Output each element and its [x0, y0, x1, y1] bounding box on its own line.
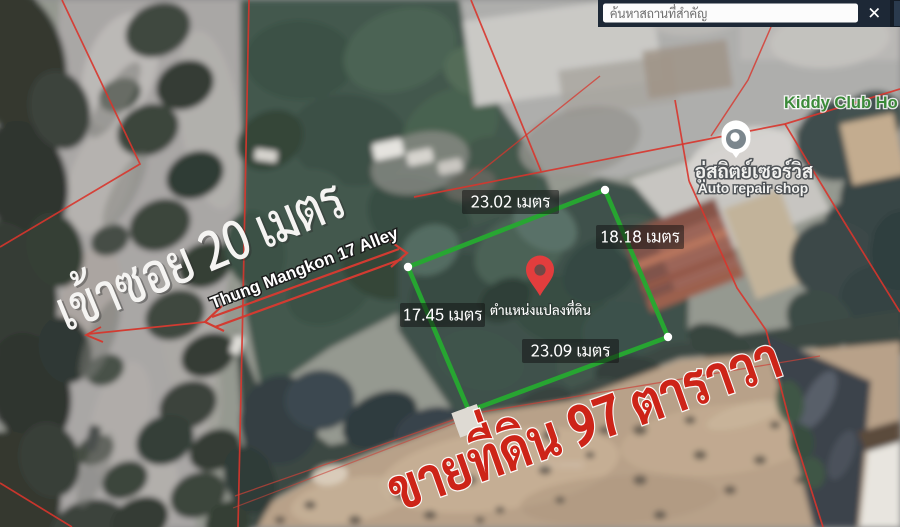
svg-text:Auto repair shop: Auto repair shop — [698, 181, 808, 196]
svg-text:Kiddy Club Ho: Kiddy Club Ho — [784, 94, 898, 112]
